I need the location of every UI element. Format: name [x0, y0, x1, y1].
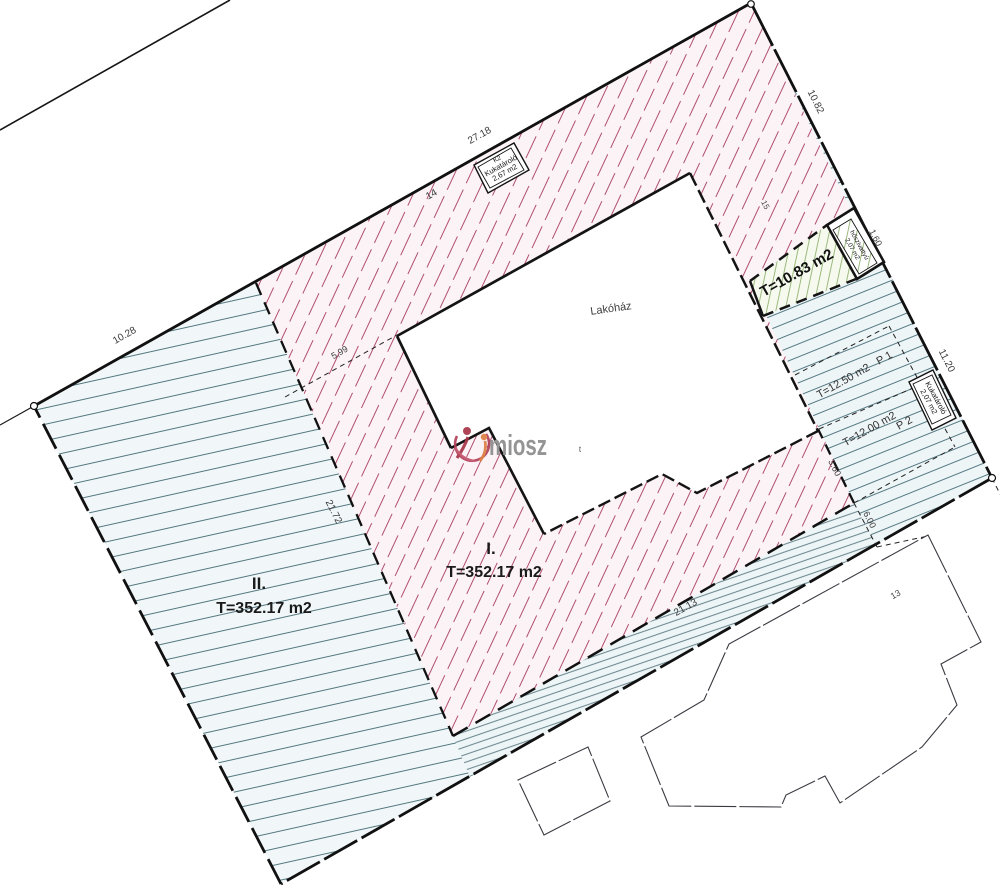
svg-text:miosz: miosz [489, 430, 547, 462]
svg-text:I.: I. [486, 539, 495, 558]
svg-text:II.: II. [252, 574, 266, 593]
svg-text:T=352.17 m2: T=352.17 m2 [446, 564, 542, 581]
svg-text:T=352.17 m2: T=352.17 m2 [216, 600, 312, 617]
